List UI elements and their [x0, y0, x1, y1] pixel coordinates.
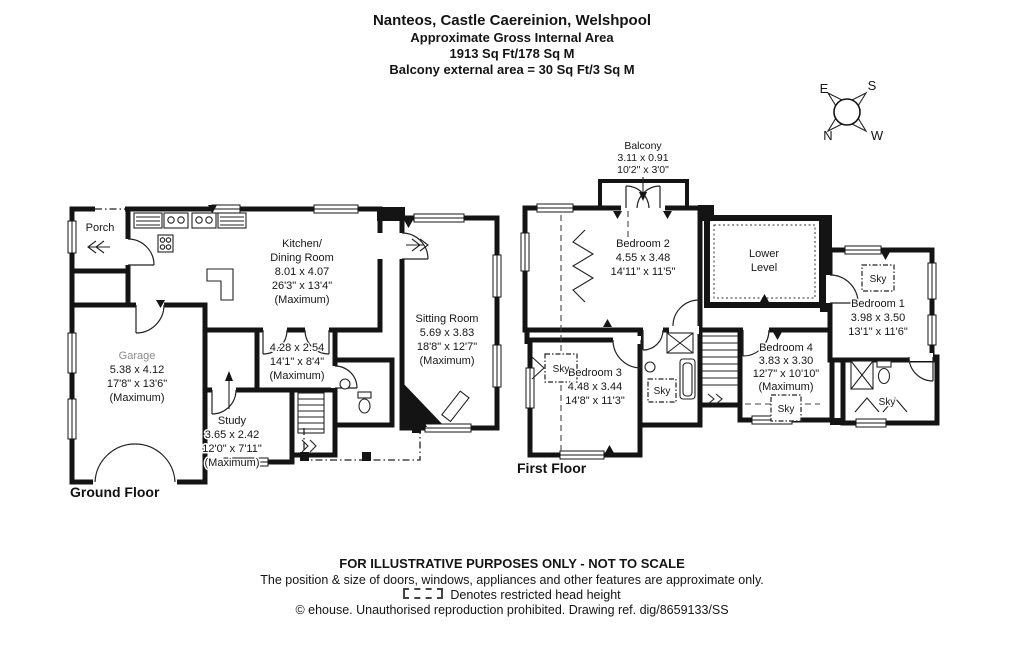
- svg-text:14'8" x 11'3": 14'8" x 11'3": [565, 395, 625, 407]
- window: [68, 399, 76, 439]
- room-label-balcony: Balcony 3.11 x 0.91 10'2" x 3'0": [617, 140, 669, 176]
- svg-text:Dining Room: Dining Room: [270, 252, 334, 264]
- window: [928, 315, 936, 345]
- window: [425, 424, 471, 432]
- shower-icon: [667, 333, 693, 353]
- svg-text:3.83 x 3.30: 3.83 x 3.30: [759, 355, 813, 367]
- window: [493, 255, 501, 297]
- skylight-label: Sky: [870, 274, 887, 285]
- window: [537, 204, 573, 212]
- hob-icon: [158, 235, 173, 252]
- page-title: Nanteos, Castle Caereinion, Welshpool: [0, 12, 1024, 30]
- svg-text:(Maximum): (Maximum): [205, 457, 260, 469]
- approx-note: The position & size of doors, windows, a…: [0, 573, 1024, 588]
- svg-text:Kitchen/: Kitchen/: [282, 238, 323, 250]
- toilet-icon: [877, 361, 891, 384]
- svg-text:(Maximum): (Maximum): [759, 381, 814, 393]
- subtitle: Approximate Gross Internal Area: [0, 30, 1024, 46]
- restricted-height-legend: Denotes restricted head height: [0, 588, 1024, 603]
- ground-floor-label: Ground Floor: [70, 484, 160, 500]
- footer: FOR ILLUSTRATIVE PURPOSES ONLY - NOT TO …: [0, 556, 1024, 618]
- svg-text:Study: Study: [218, 415, 247, 427]
- post: [362, 452, 371, 461]
- window: [68, 221, 76, 253]
- window: [521, 233, 529, 271]
- svg-text:3.11 x 0.91: 3.11 x 0.91: [617, 152, 668, 164]
- window: [856, 419, 886, 427]
- svg-text:5.69 x 3.83: 5.69 x 3.83: [420, 327, 474, 339]
- first-floor-label: First Floor: [517, 460, 587, 476]
- copyright-line: © ehouse. Unauthorised reproduction proh…: [0, 603, 1024, 618]
- svg-text:8.01 x 4.07: 8.01 x 4.07: [275, 266, 329, 278]
- svg-text:17'8" x 13'6": 17'8" x 13'6": [107, 378, 167, 390]
- compass-circle: [834, 99, 860, 125]
- svg-text:Lower: Lower: [749, 248, 779, 260]
- dashed-box-icon: [403, 588, 443, 599]
- stairwell: [700, 330, 740, 405]
- compass-e: E: [820, 81, 829, 96]
- ground-floor-plan: Porch Kitchen/ Dining Room 8.01 x 4.07 2…: [62, 195, 507, 505]
- svg-text:3.98 x 3.50: 3.98 x 3.50: [851, 312, 905, 324]
- header: Nanteos, Castle Caereinion, Welshpool Ap…: [0, 12, 1024, 78]
- svg-text:5.38 x 4.12: 5.38 x 4.12: [110, 364, 164, 376]
- svg-text:Balcony: Balcony: [624, 140, 662, 152]
- svg-text:14'11" x 11'5": 14'11" x 11'5": [611, 266, 676, 278]
- wall-patch: [377, 207, 405, 221]
- window: [845, 246, 881, 254]
- svg-text:Bedroom 2: Bedroom 2: [616, 238, 670, 250]
- svg-text:Bedroom 1: Bedroom 1: [851, 298, 905, 310]
- svg-text:26'3" x 13'4": 26'3" x 13'4": [272, 280, 332, 292]
- svg-text:Sitting Room: Sitting Room: [416, 313, 479, 325]
- disclaimer-line: FOR ILLUSTRATIVE PURPOSES ONLY - NOT TO …: [0, 556, 1024, 571]
- wall-patch: [830, 418, 845, 425]
- room-label-bedroom2: Bedroom 2 4.55 x 3.48 14'11" x 11'5": [611, 238, 676, 278]
- window: [526, 368, 534, 408]
- room-label-bedroom3: Bedroom 3 4.48 x 3.44 14'8" x 11'3": [565, 367, 625, 407]
- floorplan-page: Nanteos, Castle Caereinion, Welshpool Ap…: [0, 0, 1024, 646]
- svg-text:Level: Level: [751, 262, 777, 274]
- skylight-label: Sky: [553, 364, 570, 375]
- svg-text:14'1" x 8'4": 14'1" x 8'4": [270, 356, 324, 368]
- window: [314, 205, 358, 213]
- basin-icon: [340, 379, 350, 389]
- svg-text:3.65 x 2.42: 3.65 x 2.42: [205, 429, 259, 441]
- first-floor-plan: Balcony 3.11 x 0.91 10'2" x 3'0" Bedroom…: [515, 135, 945, 480]
- post: [300, 452, 309, 461]
- room-label-hall: 4.28 x 2.54 14'1" x 8'4" (Maximum): [270, 342, 325, 382]
- svg-text:(Maximum): (Maximum): [110, 392, 165, 404]
- skylight-label: Sky: [879, 397, 896, 408]
- svg-text:Garage: Garage: [119, 350, 156, 362]
- svg-text:10'2" x 3'0": 10'2" x 3'0": [617, 164, 669, 176]
- window: [560, 451, 604, 459]
- gross-area: 1913 Sq Ft/178 Sq M: [0, 46, 1024, 62]
- svg-text:12'0" x 7'11": 12'0" x 7'11": [202, 443, 262, 455]
- svg-text:(Maximum): (Maximum): [270, 370, 325, 382]
- svg-text:(Maximum): (Maximum): [275, 294, 330, 306]
- skylight-label: Sky: [778, 404, 795, 415]
- svg-text:13'1" x 11'6": 13'1" x 11'6": [848, 326, 908, 338]
- room-porch: [72, 209, 128, 271]
- svg-text:Bedroom 3: Bedroom 3: [568, 367, 622, 379]
- svg-text:4.28 x 2.54: 4.28 x 2.54: [270, 342, 324, 354]
- window: [414, 214, 464, 222]
- room-label-bedroom1: Bedroom 1 3.98 x 3.50 13'1" x 11'6": [848, 298, 908, 338]
- svg-text:4.48 x 3.44: 4.48 x 3.44: [568, 381, 622, 393]
- svg-text:12'7" x 10'10": 12'7" x 10'10": [753, 368, 820, 380]
- room-label-porch: Porch: [86, 222, 115, 234]
- window: [928, 263, 936, 299]
- shower-icon: [851, 361, 873, 389]
- bathtub-icon: [680, 359, 695, 399]
- skylight-label: Sky: [654, 386, 671, 397]
- svg-text:(Maximum): (Maximum): [420, 355, 475, 367]
- basin-icon: [645, 362, 655, 372]
- svg-text:18'8" x 12'7": 18'8" x 12'7": [417, 341, 477, 353]
- window: [493, 345, 501, 387]
- compass-s: S: [868, 78, 877, 93]
- room-label-bedroom4: Bedroom 4 3.83 x 3.30 12'7" x 10'10" (Ma…: [753, 342, 820, 393]
- toilet-icon: [358, 392, 371, 413]
- svg-text:4.55 x 3.48: 4.55 x 3.48: [616, 252, 670, 264]
- window: [68, 333, 76, 373]
- svg-text:Bedroom 4: Bedroom 4: [759, 342, 813, 354]
